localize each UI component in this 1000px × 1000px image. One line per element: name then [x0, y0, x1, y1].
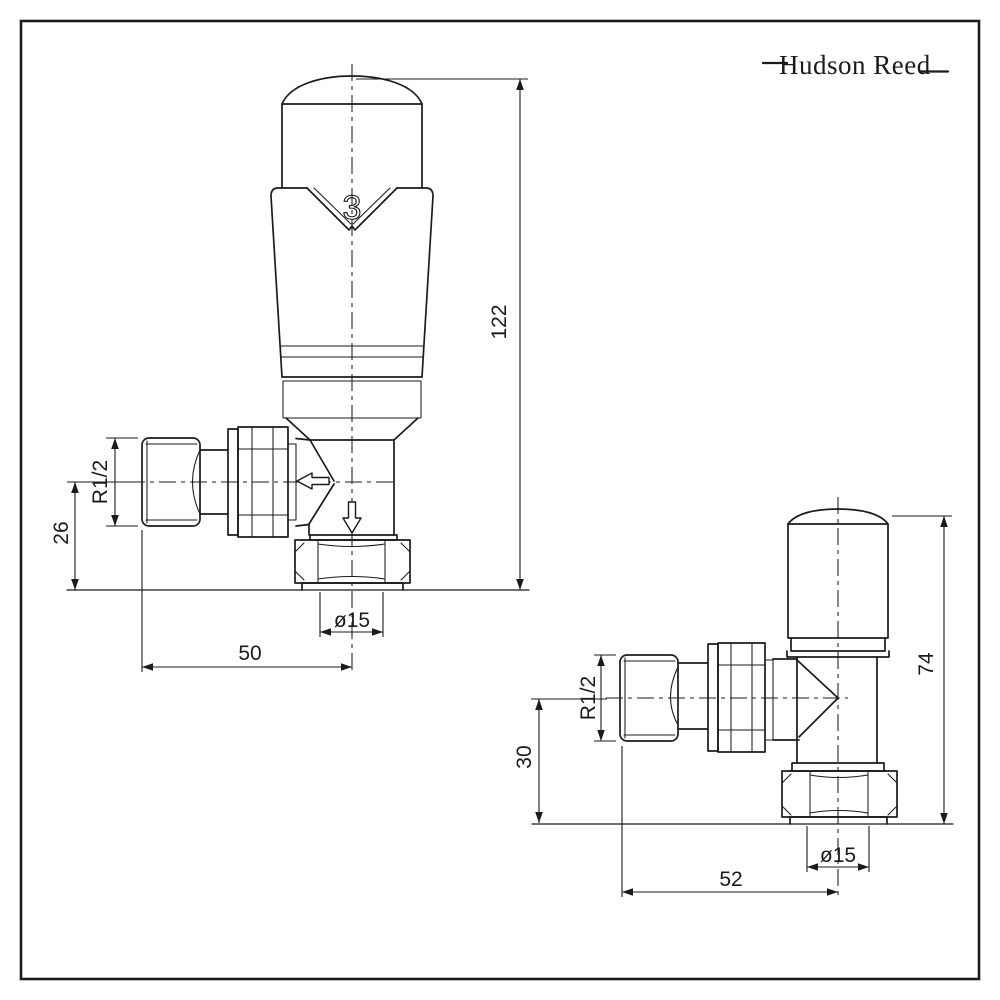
- brand-logo: Hudson Reed: [763, 50, 948, 80]
- dim-thread-label: R1/2: [89, 460, 112, 504]
- dim-arrow: [535, 699, 543, 710]
- dim-arrow: [858, 863, 869, 871]
- body-vertical-edges: [797, 657, 877, 763]
- lockshield-compression-nut: [782, 763, 897, 824]
- dim-arrow: [597, 730, 605, 741]
- flow-arrow-left-icon: [297, 473, 329, 489]
- dim-centre-base-label: 26: [50, 521, 73, 544]
- dim-arrow: [827, 888, 838, 896]
- dim-arrow: [807, 863, 818, 871]
- lockshield-valve-body: [765, 657, 877, 763]
- dim-arrow: [142, 663, 153, 671]
- lockshield-dimensions: 74 30 R1/2 52 ø15: [513, 516, 952, 897]
- lockshield-centerlines: [606, 497, 848, 897]
- trv-valve-body: [288, 439, 394, 536]
- dim-arrow: [940, 516, 948, 527]
- dim-centre-base-label: 30: [513, 745, 536, 768]
- trv-dimensions: 122 26 R1/2 50 ø15: [50, 79, 528, 672]
- head-cap-sides: [282, 104, 422, 188]
- dim-arrow: [71, 579, 79, 590]
- lockshield-drawing: 74 30 R1/2 52 ø15: [513, 497, 953, 897]
- dim-arrow: [341, 663, 352, 671]
- dim-height-label: 74: [915, 652, 938, 676]
- dim-pipe-label: ø15: [334, 609, 370, 632]
- dim-arrow: [111, 438, 119, 449]
- dim-arrow: [71, 482, 79, 493]
- dim-arrow: [622, 888, 633, 896]
- flow-arrow-down-icon: [343, 502, 361, 533]
- valve-drawing-canvas: Hudson Reed 3: [0, 0, 1000, 1000]
- body-inlet-step: [765, 660, 773, 740]
- technical-drawing-page: Hudson Reed 3: [0, 0, 1000, 1000]
- dim-arrow: [111, 515, 119, 526]
- dim-thread-label: R1/2: [577, 676, 600, 720]
- dim-arrow: [535, 812, 543, 823]
- compression-nut-facets: [782, 771, 897, 817]
- head-setting-number: 3: [343, 189, 362, 227]
- tailpiece-internal-arc: [671, 667, 679, 725]
- dim-arrow: [940, 813, 948, 824]
- brand-logo-text: Hudson Reed: [779, 50, 931, 80]
- dim-depth-label: 52: [719, 868, 742, 891]
- body-inlet-pipe: [773, 659, 799, 740]
- dim-arrow: [372, 628, 383, 636]
- dim-depth-label: 50: [238, 642, 261, 665]
- dim-arrow: [516, 579, 524, 590]
- dim-pipe-label: ø15: [820, 844, 856, 867]
- body-chamfer: [309, 440, 334, 535]
- dim-arrow: [597, 655, 605, 666]
- dim-arrow: [516, 79, 524, 90]
- trv-drawing: 3: [50, 64, 529, 674]
- page-border: [21, 21, 979, 979]
- dim-height-label: 122: [488, 304, 511, 339]
- dim-arrow: [320, 628, 331, 636]
- union-neck: [678, 663, 708, 729]
